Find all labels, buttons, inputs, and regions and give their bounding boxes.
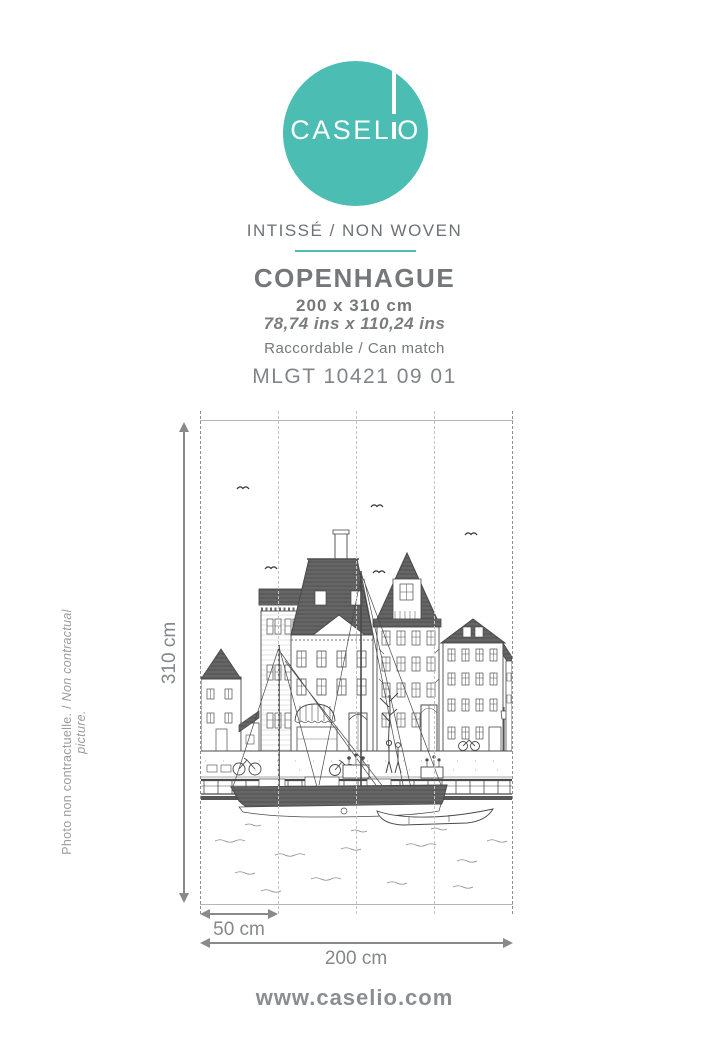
product-title: COPENHAGUE [0, 263, 709, 294]
match-label: Raccordable / Can match [0, 340, 709, 357]
total-width-arrow [200, 938, 513, 948]
accent-divider [295, 250, 416, 252]
size-metric-label: 200 x 310 cm [0, 296, 709, 316]
panel-width-arrow [200, 909, 278, 919]
total-width-label: 200 cm [294, 948, 418, 970]
website-link[interactable]: www.caselio.com [0, 985, 709, 1011]
panel-guide-line [434, 411, 435, 914]
logo-text-left: CASEL [290, 115, 391, 145]
panel-guide-line [278, 411, 279, 914]
product-sheet: CASELO INTISSÉ / NON WOVEN COPENHAGUE 20… [0, 0, 709, 1063]
size-imperial-label: 78,74 ins x 110,24 ins [0, 314, 709, 334]
panel-guide-line [356, 411, 357, 914]
material-label: INTISSÉ / NON WOVEN [0, 221, 709, 241]
disclaimer-note: Photo non contractuelle. / Non contractu… [60, 596, 88, 868]
panel-guide-line [200, 411, 201, 914]
panel-guide-line [512, 411, 513, 914]
caselio-logo: CASELO [283, 61, 428, 206]
disclaimer-fr: Photo non contractuelle. / [60, 705, 74, 855]
product-reference: MLGT 10421 09 01 [0, 365, 709, 389]
height-dimension-label: 310 cm [159, 614, 181, 692]
logo-letter-i [391, 119, 397, 139]
logo-text-right: O [397, 115, 421, 145]
caselio-logo-text: CASELO [283, 119, 428, 140]
